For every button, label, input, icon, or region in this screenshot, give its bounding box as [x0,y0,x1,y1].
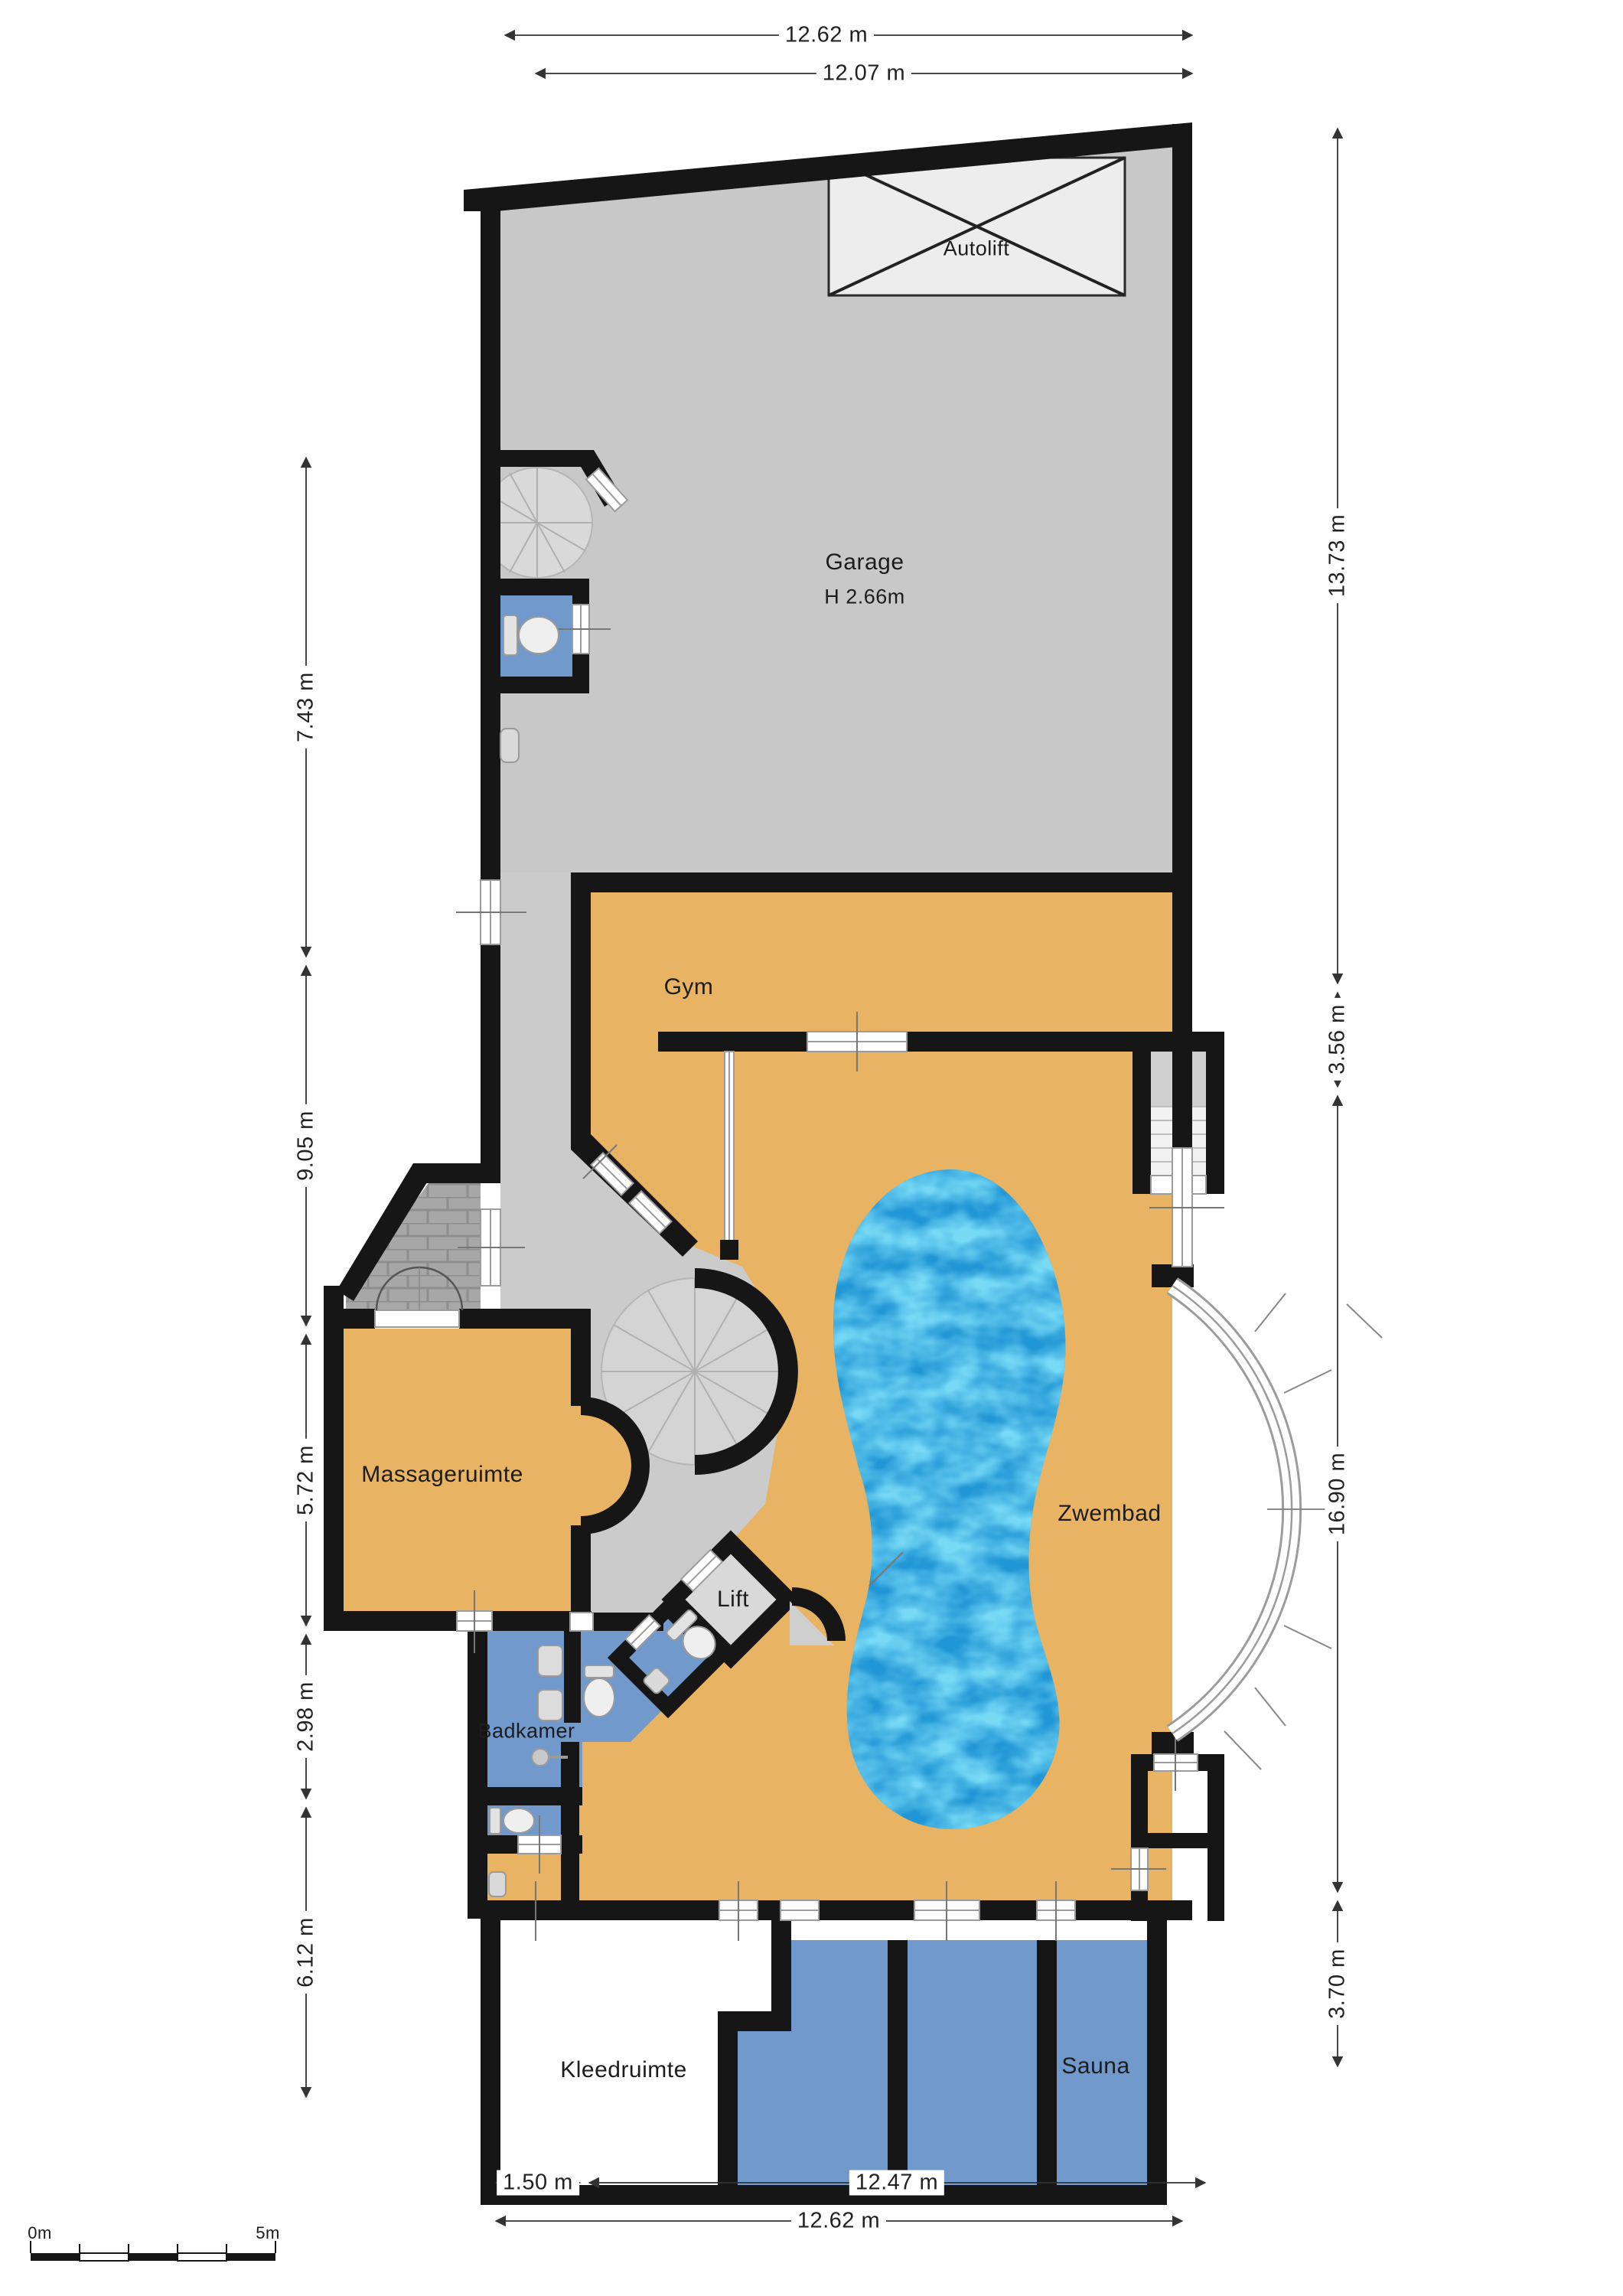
dim-right-3: 16.90 m [1325,1446,1351,1541]
dim-left-5: 6.12 m [294,1911,319,1994]
bay-window [1172,1286,1382,1769]
dim-bottom-1: 1.50 m [497,2170,579,2196]
scale-bar [31,2241,275,2261]
room-label-massageruimte: Massageruimte [361,1462,523,1488]
scale-start-label: 0m [26,2223,54,2243]
dim-left-1: 7.43 m [294,666,319,748]
curved-wall-bulge [581,1406,640,1525]
dim-left-3: 5.72 m [294,1439,319,1521]
autolift-platform [829,158,1125,295]
dim-bottom-2: 12.47 m [849,2170,944,2196]
dim-left-2: 9.05 m [294,1104,319,1187]
dim-right-1: 13.73 m [1325,508,1351,603]
room-label-badkamer: Badkamer [477,1720,575,1743]
floorplan-drawing [0,0,1623,2296]
dim-bottom-3: 12.62 m [791,2209,886,2234]
room-label-gym: Gym [664,974,714,1000]
room-label-garage: Garage [825,550,904,576]
dim-left-4: 2.98 m [294,1675,319,1758]
dim-top-2: 12.07 m [816,61,911,86]
room-note-garage-height: H 2.66m [824,585,905,609]
room-label-zwembad: Zwembad [1058,1501,1161,1527]
dim-top-1: 12.62 m [779,23,874,48]
scale-end-label: 5m [254,2223,282,2243]
floorplan-canvas: Autolift Garage H 2.66m Gym Massageruimt… [0,0,1623,2296]
room-label-lift: Lift [717,1587,749,1613]
room-label-kleedruimte: Kleedruimte [560,2057,687,2083]
dim-right-2: 3.56 m [1325,998,1351,1081]
dim-right-4: 3.70 m [1325,1942,1351,2025]
room-label-sauna: Sauna [1061,2053,1129,2079]
room-label-autolift: Autolift [943,237,1010,261]
